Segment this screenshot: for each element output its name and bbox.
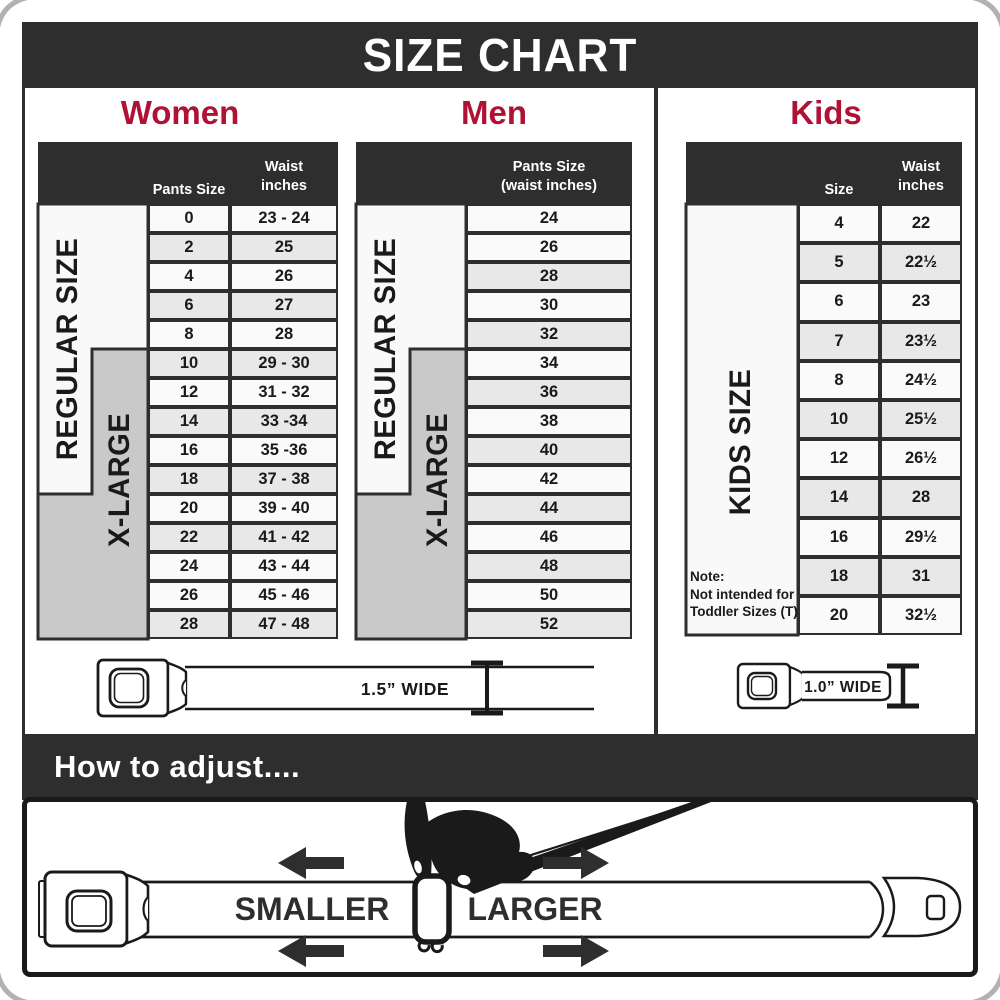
table-row: 38 — [466, 407, 632, 436]
table-cell: 12 — [148, 378, 230, 407]
table-cell: 28 — [148, 610, 230, 639]
table-row: 2032½ — [798, 596, 962, 635]
kids-note: Note: Not intended for Toddler Sizes (T) — [690, 568, 798, 621]
table-row: 1629½ — [798, 518, 962, 557]
table-cell: 38 — [466, 407, 632, 436]
table-cell: 22 — [148, 523, 230, 552]
table-cell: 35 -36 — [230, 436, 338, 465]
table-cell: 50 — [466, 581, 632, 610]
table-cell: 10 — [798, 400, 880, 439]
table-cell: 48 — [466, 552, 632, 581]
table-cell: 26 — [466, 233, 632, 262]
table-row: 44 — [466, 494, 632, 523]
larger-label: LARGER — [467, 891, 602, 927]
table-row: 723½ — [798, 322, 962, 361]
table-row: 426 — [148, 262, 338, 291]
page-title: SIZE CHART — [363, 28, 638, 82]
table-cell: 47 - 48 — [230, 610, 338, 639]
table-row: 1831 — [798, 557, 962, 596]
table-cell: 26½ — [880, 439, 962, 478]
table-row: 1635 -36 — [148, 436, 338, 465]
table-cell: 4 — [798, 204, 880, 243]
table-cell: 29 - 30 — [230, 349, 338, 378]
table-row: 2039 - 40 — [148, 494, 338, 523]
table-cell: 44 — [466, 494, 632, 523]
belt-1-5-inch-illustration: 1.5” WIDE — [90, 650, 610, 730]
table-cell: 34 — [466, 349, 632, 378]
table-cell: 32 — [466, 320, 632, 349]
table-row: 52 — [466, 610, 632, 639]
table-cell: 41 - 42 — [230, 523, 338, 552]
table-cell: 25 — [230, 233, 338, 262]
table-row: 2443 - 44 — [148, 552, 338, 581]
how-to-adjust-heading: How to adjust.... — [54, 749, 300, 785]
table-cell: 20 — [798, 596, 880, 635]
table-cell: 14 — [148, 407, 230, 436]
table-cell: 23 - 24 — [230, 204, 338, 233]
table-cell: 45 - 46 — [230, 581, 338, 610]
kids-belt-1-0-inch-illustration: 1.0” WIDE — [730, 652, 980, 722]
arrow-left-icon — [278, 847, 344, 879]
men-xlarge-label: X-LARGE — [421, 413, 455, 547]
table-cell: 25½ — [880, 400, 962, 439]
belt-width-ibeam-icon — [471, 663, 503, 713]
table-row: 46 — [466, 523, 632, 552]
table-row: 2847 - 48 — [148, 610, 338, 639]
table-cell: 33 -34 — [230, 407, 338, 436]
table-row: 48 — [466, 552, 632, 581]
table-cell: 28 — [880, 478, 962, 517]
table-cell: 46 — [466, 523, 632, 552]
table-row: 2645 - 46 — [148, 581, 338, 610]
table-cell: 22 — [880, 204, 962, 243]
arrow-right-icon — [543, 935, 609, 967]
table-cell: 20 — [148, 494, 230, 523]
table-row: 32 — [466, 320, 632, 349]
men-regular-size-label: REGULAR SIZE — [369, 238, 403, 460]
table-row: 34 — [466, 349, 632, 378]
table-row: 42 — [466, 465, 632, 494]
table-row: 023 - 24 — [148, 204, 338, 233]
table-cell: 4 — [148, 262, 230, 291]
table-row: 627 — [148, 291, 338, 320]
table-row: 30 — [466, 291, 632, 320]
table-cell: 6 — [798, 282, 880, 321]
table-cell: 36 — [466, 378, 632, 407]
table-cell: 0 — [148, 204, 230, 233]
table-cell: 23 — [880, 282, 962, 321]
belt-width-label: 1.5” WIDE — [361, 679, 449, 699]
table-cell: 31 — [880, 557, 962, 596]
women-size-table: 023 - 242254266278281029 - 301231 - 3214… — [148, 204, 338, 639]
kids-size-label: KIDS SIZE — [724, 369, 758, 516]
table-cell: 14 — [798, 478, 880, 517]
title-banner: SIZE CHART — [22, 22, 978, 88]
belt-adjuster-clamp — [415, 876, 449, 952]
table-cell: 52 — [466, 610, 632, 639]
table-cell: 40 — [466, 436, 632, 465]
table-row: 522½ — [798, 243, 962, 282]
table-cell: 18 — [148, 465, 230, 494]
table-cell: 29½ — [880, 518, 962, 557]
table-cell: 16 — [148, 436, 230, 465]
table-row: 225 — [148, 233, 338, 262]
kids-note-line3: Toddler Sizes (T) — [690, 603, 798, 621]
belt-tip — [870, 878, 960, 937]
table-row: 1226½ — [798, 439, 962, 478]
table-cell: 5 — [798, 243, 880, 282]
seatbelt-buckle-icon — [98, 660, 186, 716]
table-row: 1837 - 38 — [148, 465, 338, 494]
table-cell: 39 - 40 — [230, 494, 338, 523]
table-cell: 37 - 38 — [230, 465, 338, 494]
women-xlarge-label: X-LARGE — [103, 413, 137, 547]
table-cell: 26 — [230, 262, 338, 291]
adjustment-illustration: SMALLER LARGER — [22, 797, 978, 977]
kids-size-table: 422522½623723½824½1025½1226½14281629½183… — [798, 204, 962, 635]
table-row: 1231 - 32 — [148, 378, 338, 407]
table-row: 36 — [466, 378, 632, 407]
table-row: 422 — [798, 204, 962, 243]
table-row: 40 — [466, 436, 632, 465]
table-row: 1025½ — [798, 400, 962, 439]
table-cell: 42 — [466, 465, 632, 494]
seatbelt-buckle-icon — [39, 872, 148, 946]
table-cell: 16 — [798, 518, 880, 557]
seatbelt-buckle-icon — [738, 664, 803, 708]
table-cell: 32½ — [880, 596, 962, 635]
table-row: 828 — [148, 320, 338, 349]
kids-note-line1: Note: — [690, 568, 798, 586]
table-cell: 27 — [230, 291, 338, 320]
table-cell: 31 - 32 — [230, 378, 338, 407]
table-cell: 24 — [466, 204, 632, 233]
table-row: 1029 - 30 — [148, 349, 338, 378]
table-cell: 22½ — [880, 243, 962, 282]
women-regular-size-label: REGULAR SIZE — [51, 238, 85, 460]
table-cell: 26 — [148, 581, 230, 610]
table-cell: 2 — [148, 233, 230, 262]
table-cell: 10 — [148, 349, 230, 378]
table-row: 623 — [798, 282, 962, 321]
table-row: 24 — [466, 204, 632, 233]
table-cell: 28 — [466, 262, 632, 291]
table-row: 1433 -34 — [148, 407, 338, 436]
kids-belt-width-label: 1.0” WIDE — [804, 679, 882, 696]
kids-note-line2: Not intended for — [690, 586, 798, 604]
table-cell: 12 — [798, 439, 880, 478]
table-cell: 18 — [798, 557, 880, 596]
arrow-left-icon — [278, 935, 344, 967]
table-row: 28 — [466, 262, 632, 291]
table-cell: 23½ — [880, 322, 962, 361]
men-size-table: 242628303234363840424446485052 — [466, 204, 632, 639]
table-row: 824½ — [798, 361, 962, 400]
table-cell: 6 — [148, 291, 230, 320]
table-row: 26 — [466, 233, 632, 262]
table-row: 1428 — [798, 478, 962, 517]
table-cell: 30 — [466, 291, 632, 320]
table-cell: 28 — [230, 320, 338, 349]
table-cell: 8 — [798, 361, 880, 400]
table-row: 2241 - 42 — [148, 523, 338, 552]
size-chart-page: SIZE CHART Women Men Kids Pants Size Wai… — [0, 0, 1000, 1000]
how-to-adjust-band: How to adjust.... — [22, 737, 978, 800]
table-cell: 7 — [798, 322, 880, 361]
table-row: 50 — [466, 581, 632, 610]
table-cell: 43 - 44 — [230, 552, 338, 581]
belt-width-ibeam-icon — [887, 666, 919, 706]
smaller-label: SMALLER — [235, 891, 390, 927]
table-cell: 24 — [148, 552, 230, 581]
table-cell: 8 — [148, 320, 230, 349]
table-cell: 24½ — [880, 361, 962, 400]
